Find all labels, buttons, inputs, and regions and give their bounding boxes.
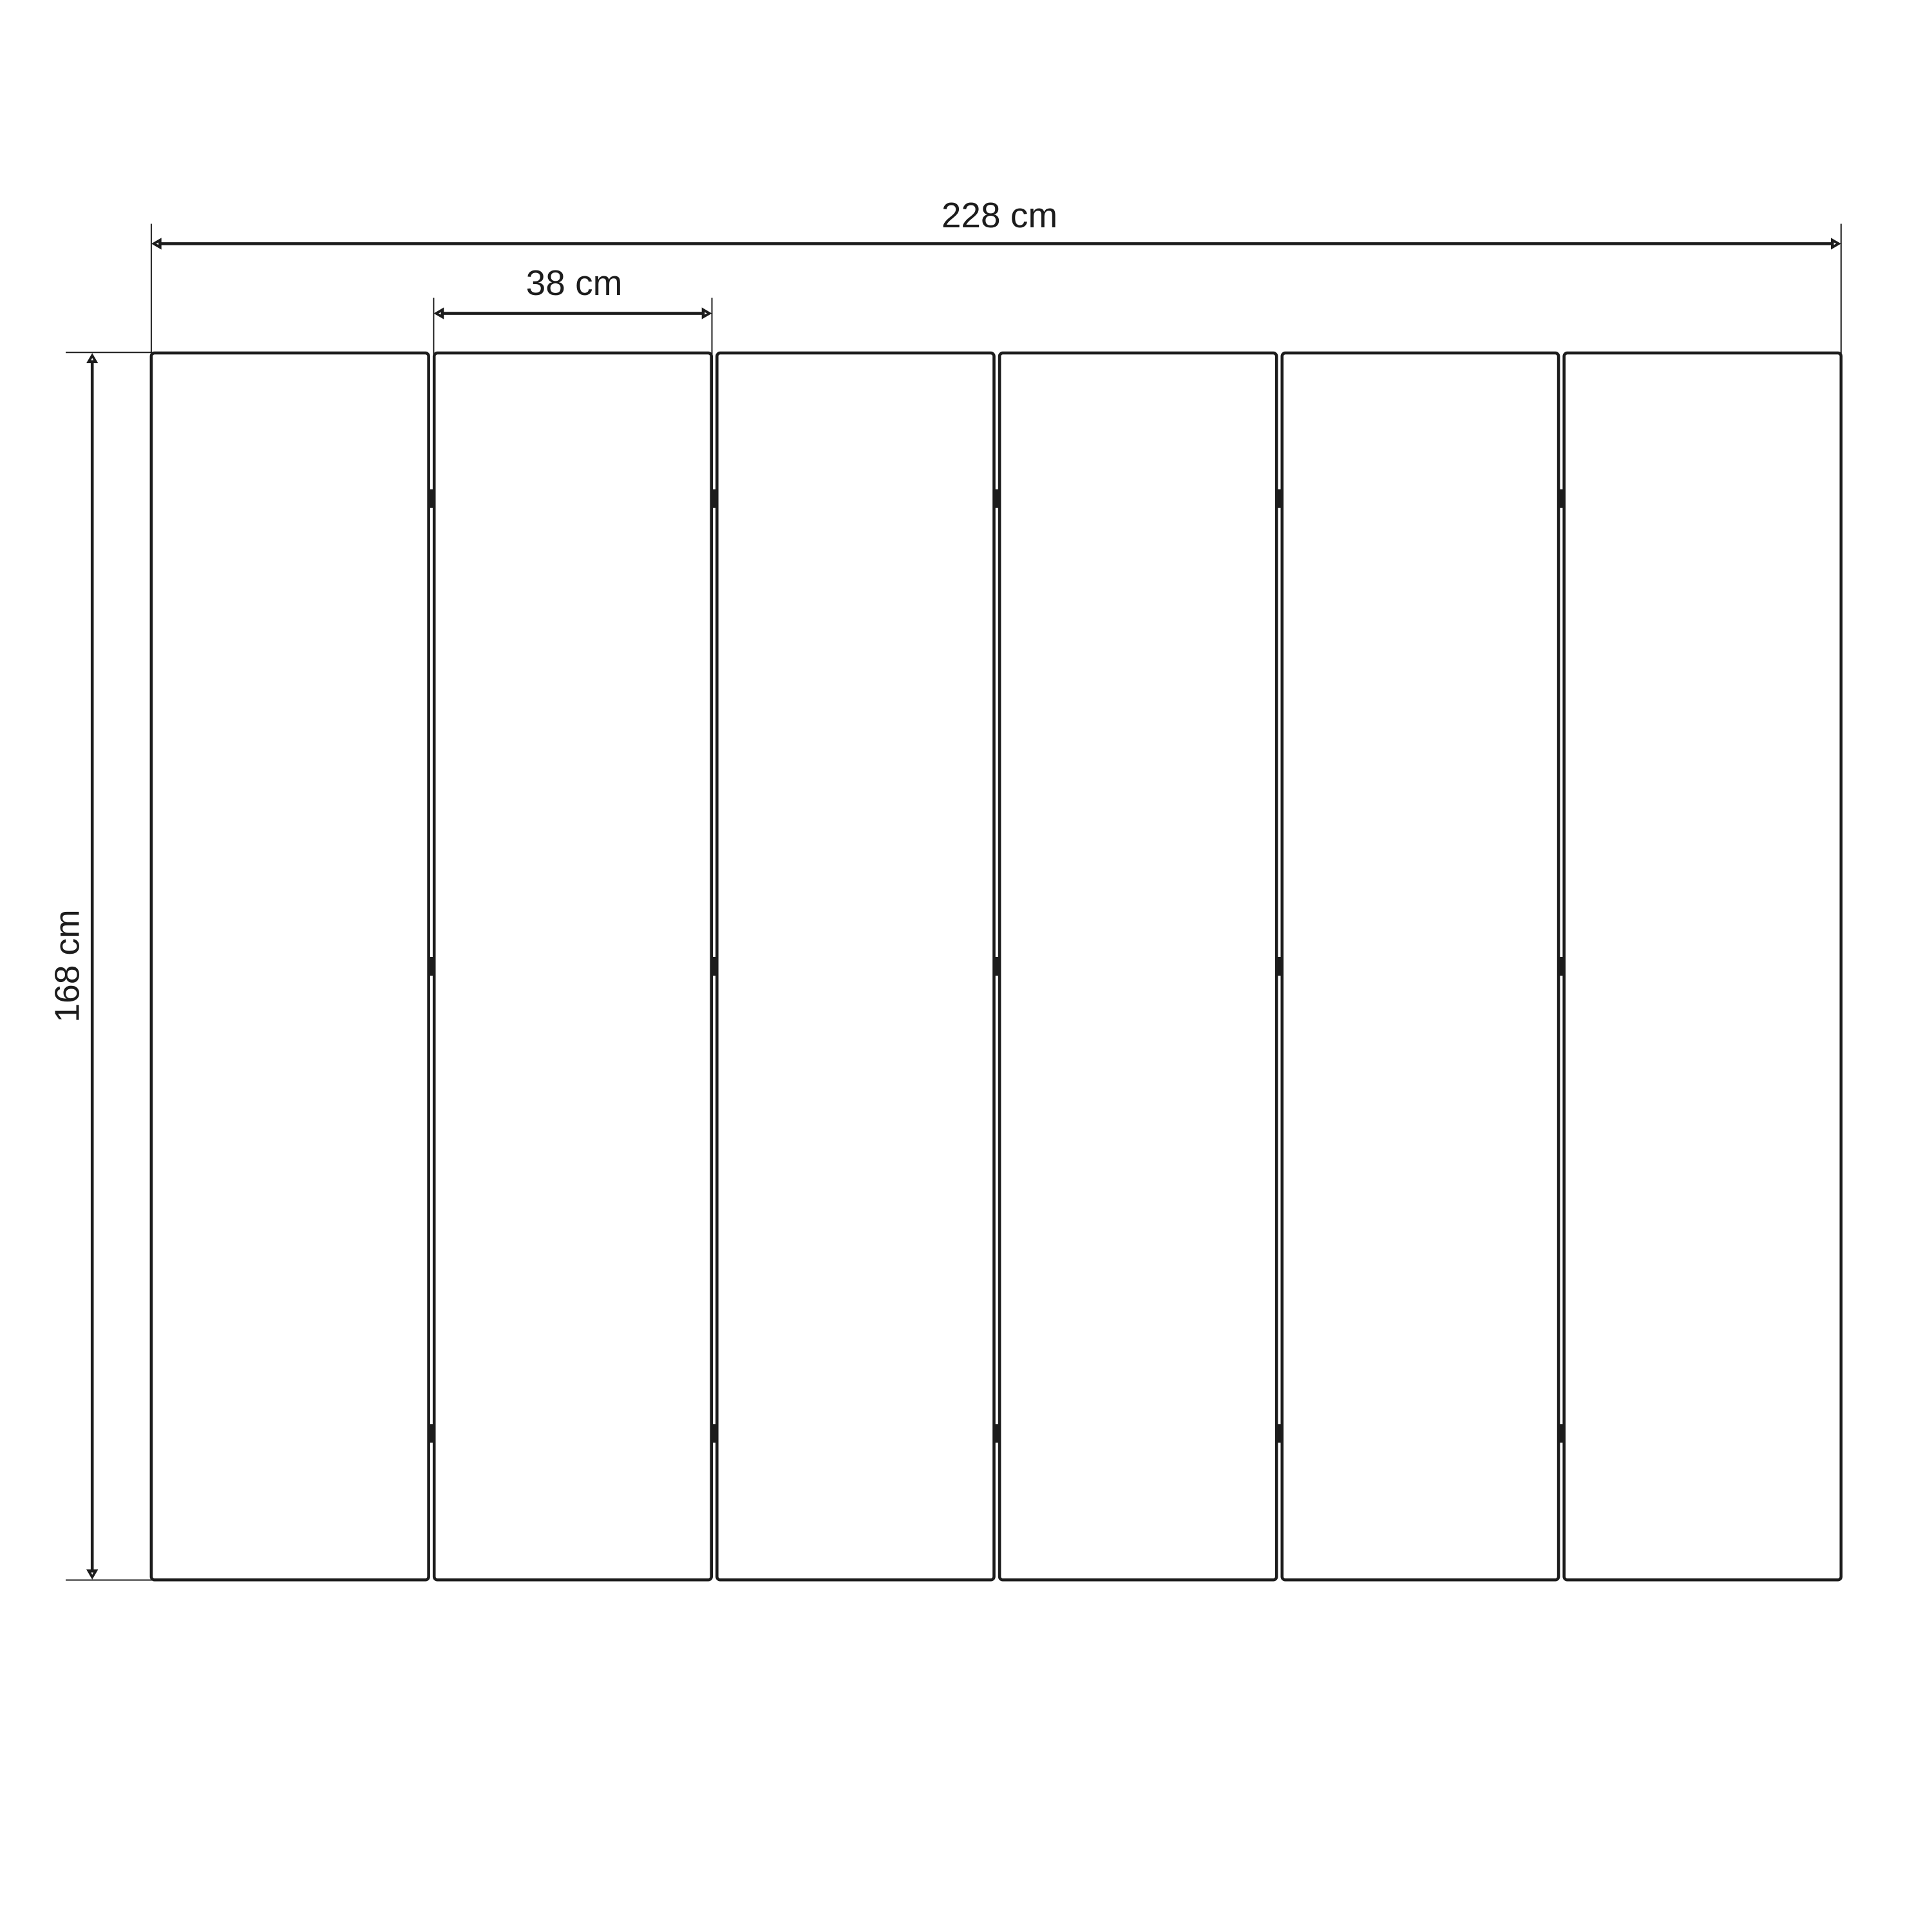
svg-text:168 cm: 168 cm [49,909,87,1022]
svg-text:38 cm: 38 cm [526,263,623,303]
svg-text:228 cm: 228 cm [942,195,1057,235]
